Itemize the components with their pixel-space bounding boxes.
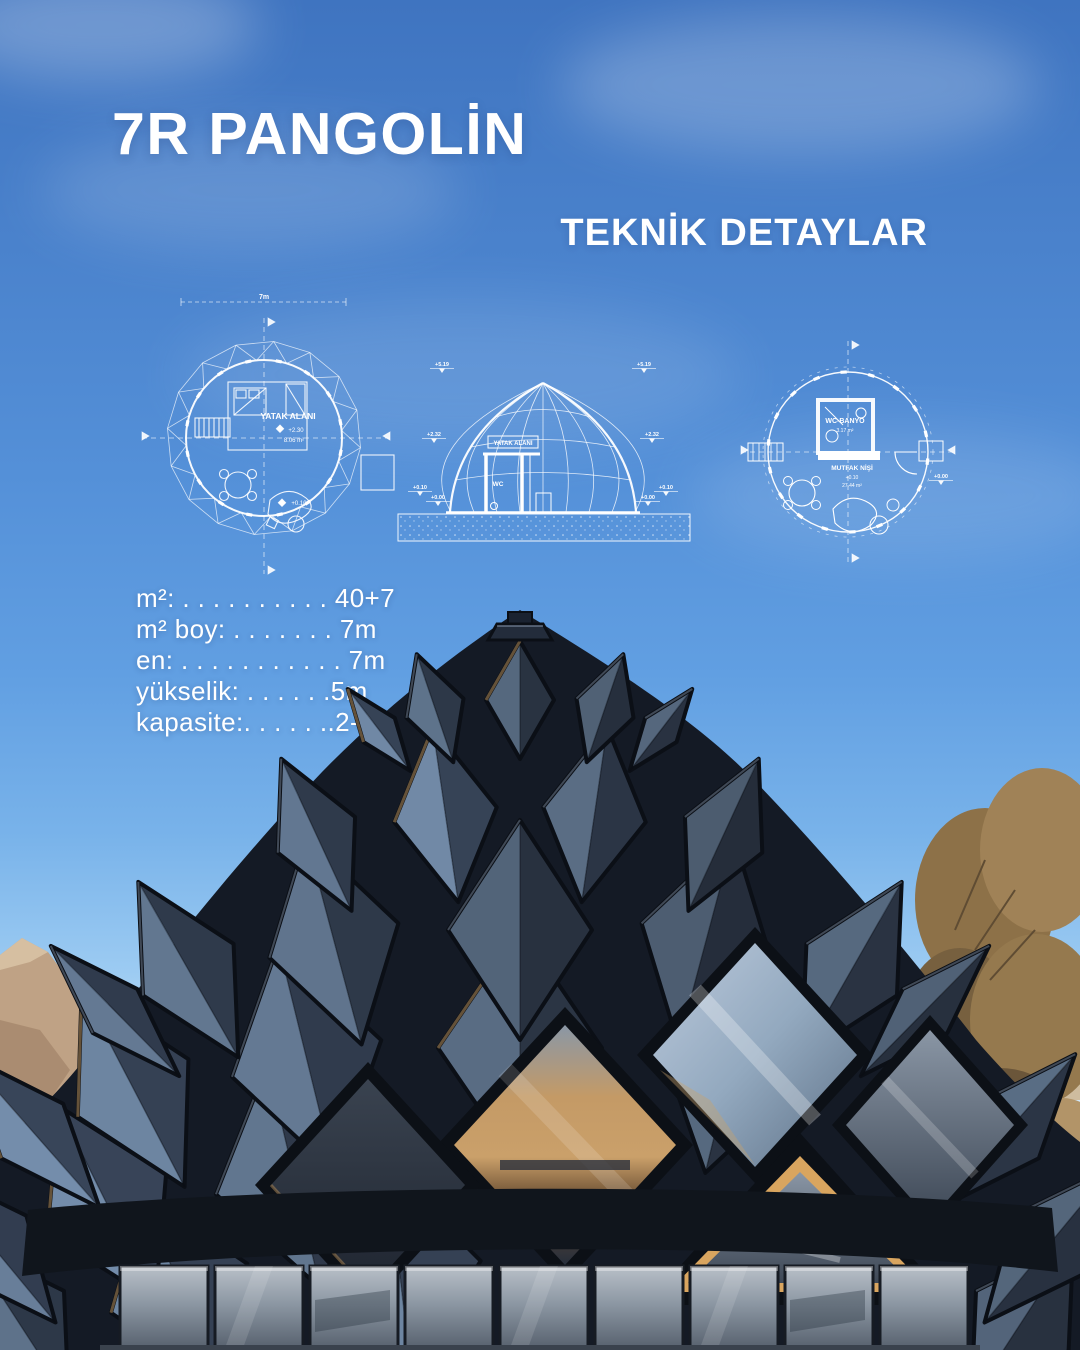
- level-marker: +5.19: [430, 362, 454, 373]
- bp1-axes: [142, 298, 390, 574]
- level-marker: +2.32: [422, 432, 446, 443]
- bp1-room-label: YATAK ALANI: [260, 411, 315, 421]
- blueprint-plan-sleeping: 7m YATAK ALANI +2.30 8.06 m² +0.10: [118, 288, 413, 583]
- bp1-dim-label: 7m: [259, 294, 269, 301]
- bp3-nook-label: MUTFAK NİŞİ: [831, 464, 873, 472]
- svg-text:+0.10: +0.10: [413, 485, 427, 491]
- sill: [100, 1345, 980, 1350]
- svg-text:+2.32: +2.32: [645, 432, 659, 438]
- level-marker: +0.00: [636, 495, 660, 506]
- bp1-level-low-label: +0.10: [291, 501, 307, 507]
- level-marker: +2.32: [640, 432, 664, 443]
- svg-text:+0.10: +0.10: [659, 485, 673, 491]
- svg-text:+0.00: +0.00: [431, 495, 445, 501]
- svg-text:+0.00: +0.00: [934, 474, 948, 480]
- dome-cap: [488, 612, 552, 640]
- svg-text:+0.00: +0.00: [641, 495, 655, 501]
- bp3-room-label: WC-BANYO: [825, 418, 865, 425]
- cloud: [0, 0, 260, 80]
- base-band: [22, 1189, 1058, 1350]
- glass-band: [120, 1266, 968, 1348]
- svg-text:+2.32: +2.32: [427, 432, 441, 438]
- dome-photo: [0, 600, 1080, 1350]
- level-marker: +0.10: [654, 485, 678, 496]
- page-subtitle: TEKNİK DETAYLAR: [560, 212, 928, 255]
- level-marker: +5.19: [632, 362, 656, 373]
- level-marker: +0.00: [426, 495, 450, 506]
- poster: 7R PANGOLİN TEKNİK DETAYLAR: [0, 0, 1080, 1350]
- level-marker: +0.10: [408, 485, 432, 496]
- bp1-area-label: 8.06 m²: [284, 438, 304, 444]
- level-marker: +0.00: [929, 474, 953, 485]
- bp1-level-label: +2.30: [288, 428, 304, 434]
- bp2-wc-label: WC: [493, 481, 504, 488]
- blueprint-elevation: YATAK ALANI WC +5.19+5.19+2.32+2.32+0.10…: [390, 335, 700, 550]
- bp2-room-label: YATAK ALANI: [494, 441, 533, 447]
- page-title: 7R PANGOLİN: [112, 100, 527, 168]
- bp2-ground: [398, 513, 690, 542]
- svg-text:+5.19: +5.19: [637, 362, 651, 368]
- blueprint-plan-wc-kitchen: WC-BANYO 3.17 m² MUTFAK NİŞİ +0.10 27.44…: [733, 333, 968, 568]
- svg-text:+5.19: +5.19: [435, 362, 449, 368]
- bp3-area-label: 27.44 m²: [842, 483, 862, 489]
- bp3-level-label: +0.10: [846, 475, 859, 481]
- cloud: [560, 15, 1040, 155]
- bp3-room-area-label: 3.17 m²: [837, 428, 854, 434]
